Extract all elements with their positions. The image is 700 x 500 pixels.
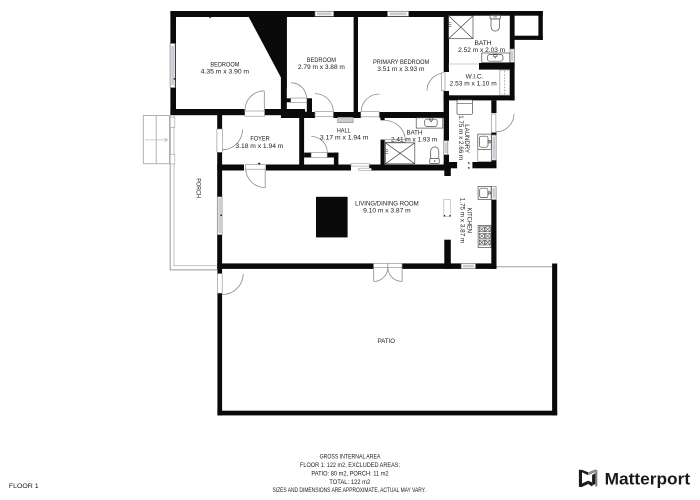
svg-text:BATH: BATH [475,40,492,47]
svg-text:2.41 m x 1.93 m: 2.41 m x 1.93 m [391,137,437,144]
svg-text:PRIMARY BEDROOM: PRIMARY BEDROOM [373,59,429,66]
svg-text:W.I.C.: W.I.C. [466,73,484,80]
svg-text:SIZES AND DIMENSIONS ARE APPRO: SIZES AND DIMENSIONS ARE APPROXIMATE, AC… [273,487,426,494]
svg-text:PORCH: PORCH [194,178,201,198]
svg-text:BATH: BATH [407,129,423,136]
svg-text:GROSS INTERNAL AREA: GROSS INTERNAL AREA [320,454,381,461]
svg-text:FOYER: FOYER [250,136,270,143]
svg-text:3.18 m x 1.94 m: 3.18 m x 1.94 m [235,143,283,150]
svg-text:2.79 m x 3.88 m: 2.79 m x 3.88 m [298,64,345,71]
svg-text:TOTAL: 122 m2: TOTAL: 122 m2 [329,479,370,486]
svg-text:HALL: HALL [337,127,351,134]
svg-text:1.75 m x 2.66 m: 1.75 m x 2.66 m [457,115,464,160]
svg-text:1.75 m x 3.87 m: 1.75 m x 3.87 m [459,198,466,244]
svg-text:Matterport: Matterport [605,470,691,489]
svg-text:FLOOR 1: 122 m2, EXCLUDED AREA: FLOOR 1: 122 m2, EXCLUDED AREAS: [300,462,400,469]
svg-text:9.10 m x 3.87 m: 9.10 m x 3.87 m [363,208,411,215]
svg-text:3.51 m x 3.93 m: 3.51 m x 3.93 m [377,66,424,73]
svg-text:4.35 m x 3.90 m: 4.35 m x 3.90 m [201,69,249,76]
svg-text:2.52 m x 2.03 m: 2.52 m x 2.03 m [458,47,505,54]
svg-text:LIVING/DINING ROOM: LIVING/DINING ROOM [355,200,419,207]
svg-text:PATIO: PATIO [378,338,395,345]
svg-text:2.53 m x 1.10 m: 2.53 m x 1.10 m [450,81,497,88]
svg-text:BEDROOM: BEDROOM [210,62,239,69]
svg-text:BEDROOM: BEDROOM [307,57,336,64]
svg-text:3.17 m x 1.94 m: 3.17 m x 1.94 m [320,135,369,142]
svg-text:FLOOR 1: FLOOR 1 [9,483,39,490]
svg-text:PATIO: 80 m2, PORCH: 11 m2: PATIO: 80 m2, PORCH: 11 m2 [311,471,389,478]
